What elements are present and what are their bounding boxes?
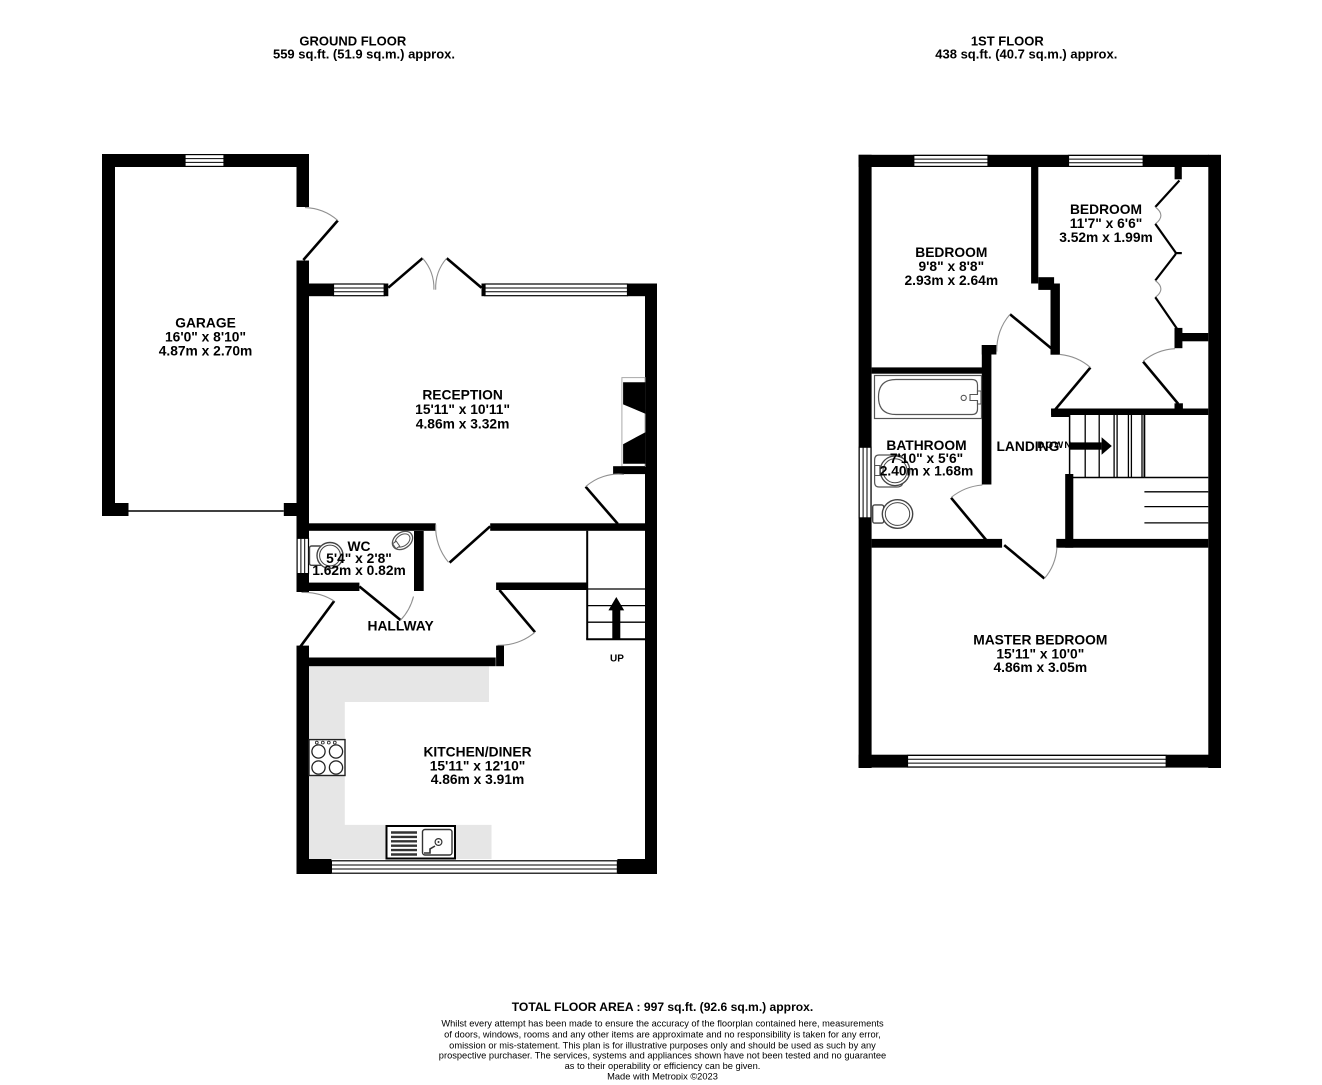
svg-text:3.52m x 1.99m: 3.52m x 1.99m xyxy=(1059,230,1153,245)
svg-text:4.86m x 3.05m: 4.86m x 3.05m xyxy=(994,660,1088,675)
svg-text:16'0" x 8'10": 16'0" x 8'10" xyxy=(165,330,246,345)
svg-text:4.86m x 3.32m: 4.86m x 3.32m xyxy=(416,417,510,432)
svg-text:4.87m x 2.70m: 4.87m x 2.70m xyxy=(159,343,253,358)
svg-text:2.93m x 2.64m: 2.93m x 2.64m xyxy=(905,273,999,288)
svg-text:DOWN: DOWN xyxy=(1038,440,1073,451)
svg-text:UP: UP xyxy=(610,654,624,665)
svg-text:GARAGE: GARAGE xyxy=(175,316,236,331)
svg-text:Whilst every attempt has been: Whilst every attempt has been made to en… xyxy=(441,1019,884,1029)
svg-text:1.62m x 0.82m: 1.62m x 0.82m xyxy=(312,563,406,578)
svg-text:HALLWAY: HALLWAY xyxy=(368,619,434,634)
svg-text:11'7" x 6'6": 11'7" x 6'6" xyxy=(1070,216,1143,231)
svg-text:prospective purchaser. The ser: prospective purchaser. The services, sys… xyxy=(439,1051,886,1061)
svg-text:TOTAL FLOOR AREA : 997 sq.ft.: TOTAL FLOOR AREA : 997 sq.ft. (92.6 sq.m… xyxy=(512,1000,814,1014)
svg-text:MASTER BEDROOM: MASTER BEDROOM xyxy=(973,632,1107,647)
svg-text:438 sq.ft. (40.7 sq.m.) approx: 438 sq.ft. (40.7 sq.m.) approx. xyxy=(935,46,1117,61)
svg-text:RECEPTION: RECEPTION xyxy=(422,388,503,403)
svg-text:KITCHEN/DINER: KITCHEN/DINER xyxy=(423,744,531,759)
svg-text:BEDROOM: BEDROOM xyxy=(1070,202,1142,217)
svg-text:Made with Metropix ©2023: Made with Metropix ©2023 xyxy=(607,1071,718,1080)
svg-text:as to their operability or eff: as to their operability or efficiency ca… xyxy=(565,1061,761,1071)
svg-text:9'8" x 8'8": 9'8" x 8'8" xyxy=(918,259,984,274)
svg-text:of doors, windows, rooms and a: of doors, windows, rooms and any other i… xyxy=(444,1030,881,1040)
svg-text:559 sq.ft. (51.9 sq.m.) approx: 559 sq.ft. (51.9 sq.m.) approx. xyxy=(273,46,455,61)
svg-text:15'11" x 10'0": 15'11" x 10'0" xyxy=(996,646,1084,661)
svg-text:15'11" x 10'11": 15'11" x 10'11" xyxy=(415,402,510,417)
svg-text:omission or mis-statement. Thi: omission or mis-statement. This plan is … xyxy=(449,1040,876,1050)
svg-text:2.40m x 1.68m: 2.40m x 1.68m xyxy=(880,464,974,479)
svg-text:BEDROOM: BEDROOM xyxy=(915,245,987,260)
svg-text:4.86m x 3.91m: 4.86m x 3.91m xyxy=(431,772,525,787)
